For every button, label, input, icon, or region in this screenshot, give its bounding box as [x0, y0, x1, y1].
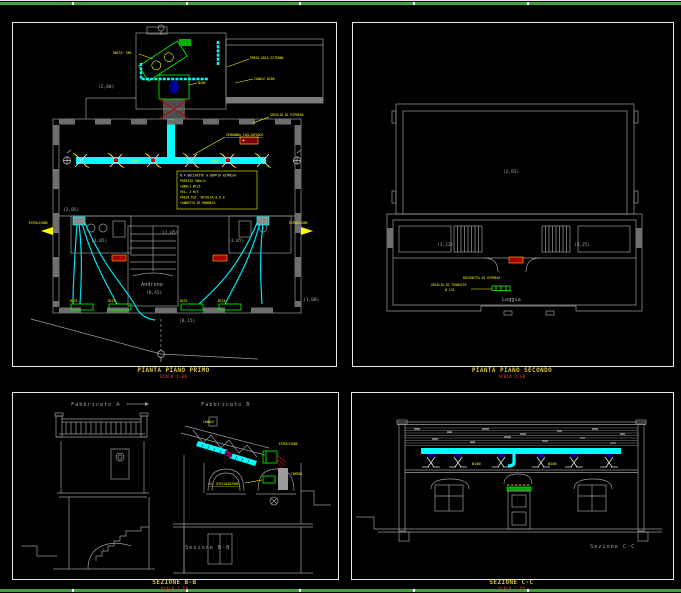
- building-b-label: Fabbricato B: [201, 402, 250, 408]
- title-scale: SCALA 1:50: [352, 374, 672, 379]
- legend-line: N.4 BOCCHETTE A DOPPIA RIPRESA: [180, 174, 236, 178]
- annotation: SERRANDA TAGLIAFUOCO: [226, 133, 263, 137]
- annotation: EL. RISCALDATORE: [209, 482, 239, 486]
- diffuser-label: Ø100: [472, 461, 481, 466]
- right-wing-roof: [226, 39, 323, 103]
- title-scale: SCALA 1:50: [351, 586, 672, 591]
- border-tick: [413, 2, 415, 5]
- annotation: BOCCHETTA DI RIPRESA: [463, 276, 500, 280]
- grille-label: Ø125: [180, 298, 188, 303]
- annotation: ESPULSIONE: [279, 442, 298, 446]
- room-label: (2,00): [98, 84, 114, 90]
- supply-duct-horizontal: [76, 157, 266, 164]
- title-scale: SCALA 1:50: [12, 374, 335, 379]
- diffusers: [422, 454, 618, 467]
- annotation: CAMINO: [291, 472, 302, 476]
- grille-label: Ø125: [108, 298, 116, 303]
- building-a-leader: [126, 402, 149, 406]
- fire-rating-tag: [240, 137, 258, 144]
- room-label: (3,05): [228, 238, 244, 244]
- annotation: Ø 125: [445, 287, 454, 292]
- building-b-ahu: [263, 451, 288, 505]
- diffuser-label: Ø100: [548, 461, 557, 466]
- unit-outlet: [179, 39, 191, 46]
- border-tick: [72, 2, 74, 5]
- plan-first-floor-drawing: N.4 BOCCHETTE A DOPPIA RIPRESA PORTATA 5…: [13, 23, 336, 366]
- section-caption: Sezione C-C: [590, 544, 635, 550]
- annotation: Ø200: [198, 80, 206, 85]
- panel-plan-second-floor: (2,65) (3,23) (3,25): [352, 22, 674, 367]
- duct-size-label: Ø200: [131, 159, 139, 164]
- legend-line: PRESA EST. GRIGLIA 0,5 m: [180, 196, 225, 200]
- title-plan-first-floor: PIANTA PIANO PRIMO SCALA 1:50: [12, 367, 335, 379]
- title-section-bb: SEZIONE B-B SCALA 1:50: [12, 579, 337, 591]
- sheet-top-green-border: [0, 2, 681, 5]
- roof-hatch: [405, 428, 638, 446]
- left-window: [431, 479, 469, 511]
- building-a-section: [21, 413, 155, 569]
- room-label: Androne: [141, 282, 163, 288]
- attic-duct: [421, 448, 621, 454]
- sheet-top-line: [0, 0, 681, 1]
- grille-label: Ø125: [218, 298, 226, 303]
- grille-label: Ø125: [70, 298, 78, 303]
- section-cc-drawing: Ø100 Ø100: [352, 393, 673, 579]
- panel-section-bb: Fabbricato A Fabbricato B: [12, 392, 339, 580]
- exhaust-label-right: ESPULSIONE: [289, 221, 308, 225]
- panel-section-cc: Ø100 Ø100: [351, 392, 674, 580]
- room-label: (0,15): [179, 318, 195, 324]
- stairs: [454, 226, 570, 252]
- building-a-label: Fabbricato A: [71, 402, 120, 408]
- cad-sheet: N.4 BOCCHETTE A DOPPIA RIPRESA PORTATA 5…: [0, 0, 681, 593]
- annotation: CANALE: [203, 420, 214, 424]
- title-text: PIANTA PIANO SECONDO: [352, 367, 672, 374]
- border-tick: [527, 2, 529, 5]
- title-text: PIANTA PIANO PRIMO: [12, 367, 335, 374]
- border-tick: [186, 2, 188, 5]
- room-label: (3,05): [91, 238, 107, 244]
- room-label: (2,05): [63, 207, 79, 213]
- duct-size-label: Ø200: [211, 159, 219, 164]
- big-room-walls: [392, 104, 638, 214]
- transit-grille: [471, 286, 510, 291]
- right-window: [574, 479, 612, 511]
- mech-room-walls: [86, 27, 226, 119]
- vmc-tag-left: [112, 255, 126, 261]
- legend-line: CANALI Ø125: [180, 184, 201, 189]
- panel-plan-first-floor: N.4 BOCCHETTE A DOPPIA RIPRESA PORTATA 5…: [12, 22, 337, 367]
- entry-door: [504, 474, 532, 529]
- building-b-walls: [173, 455, 331, 573]
- plan-second-floor-drawing: (2,65) (3,23) (3,25): [353, 23, 673, 366]
- room-label: (1,00): [303, 297, 319, 303]
- attic-duct-drop: [508, 454, 514, 466]
- annotation: PRESA ARIA ESTERNA: [250, 56, 284, 60]
- section-caption: Sezione B-B: [185, 545, 230, 551]
- exhaust-label-left: ESPULSIONE: [29, 221, 48, 225]
- filter-unit: [159, 75, 189, 119]
- legend-line: PORTATA 50mc/h: [180, 179, 206, 183]
- intake-duct: [141, 41, 218, 79]
- room-label: (3,23): [437, 242, 453, 248]
- room-label: (0,45): [146, 290, 162, 296]
- legend-line: VEL. 2 M/S: [180, 190, 199, 194]
- room-label: Loggia: [502, 297, 521, 303]
- legend-box: N.4 BOCCHETTE A DOPPIA RIPRESA PORTATA 5…: [177, 171, 257, 209]
- title-section-cc: SEZIONE C-C SCALA 1:50: [351, 579, 672, 591]
- annotation: GRIGLIA DI TRANSITO: [431, 283, 467, 287]
- border-tick: [299, 2, 301, 5]
- ceiling-lines: [405, 470, 638, 473]
- annotation: CANALE Ø200: [254, 76, 275, 81]
- flex-ducts: [73, 223, 263, 320]
- title-plan-second-floor: PIANTA PIANO SECONDO SCALA 1:50: [352, 367, 672, 379]
- building-shell: [397, 420, 646, 531]
- ground-lines: [356, 517, 662, 541]
- supply-duct-vertical: [167, 119, 175, 161]
- vmc-tag: [509, 257, 523, 263]
- legend-line: CONDOTTO DI MANDATA: [180, 201, 216, 205]
- loggia-edge: [504, 311, 554, 315]
- annotation: UNITA' VMC: [113, 51, 132, 55]
- annotation: GRIGLIA DI RIPRESA: [270, 113, 304, 117]
- title-scale: SCALA 1:50: [12, 586, 337, 591]
- boundary-line: [31, 319, 258, 362]
- title-text: SEZIONE B-B: [12, 579, 337, 586]
- section-bb-drawing: Fabbricato A Fabbricato B: [13, 393, 338, 579]
- section-marker-top: [158, 25, 164, 35]
- vmc-tag-right: [213, 255, 227, 261]
- room-label: (3,25): [574, 242, 590, 248]
- room-label: (2,05): [162, 230, 178, 236]
- room-label: (2,65): [503, 169, 519, 175]
- title-text: SEZIONE C-C: [351, 579, 672, 586]
